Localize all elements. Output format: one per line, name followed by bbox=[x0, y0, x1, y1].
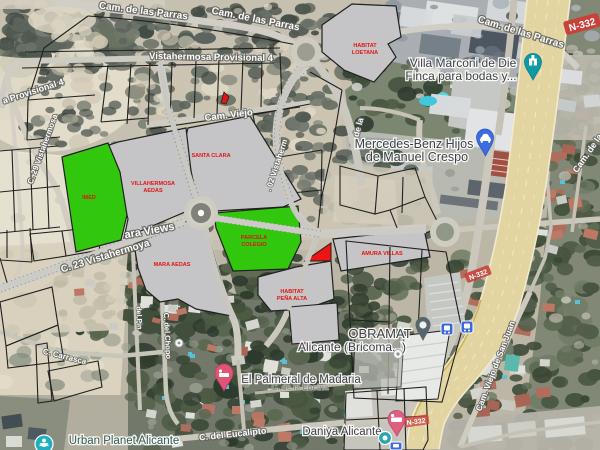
svg-text:Villa Marconi de Die: Villa Marconi de Die bbox=[410, 56, 517, 70]
svg-text:AEDAS: AEDAS bbox=[143, 188, 163, 194]
svg-text:HABITAT: HABITAT bbox=[280, 289, 304, 295]
svg-text:AMURA VILLAS: AMURA VILLAS bbox=[361, 251, 403, 257]
svg-text:Daniya Alicante: Daniya Alicante bbox=[302, 426, 381, 438]
svg-text:IMED: IMED bbox=[82, 195, 96, 201]
svg-text:SANTA CLARA: SANTA CLARA bbox=[191, 153, 230, 159]
svg-text:OBRAMAT: OBRAMAT bbox=[348, 326, 411, 341]
svg-text:Mercedes-Benz Hijos: Mercedes-Benz Hijos bbox=[355, 137, 474, 151]
svg-text:VILLAHERMOSA: VILLAHERMOSA bbox=[131, 181, 175, 187]
svg-text:de Manuel Crespo: de Manuel Crespo bbox=[366, 150, 468, 164]
svg-text:HABITAT: HABITAT bbox=[353, 43, 377, 49]
svg-text:PEÑA ALTA: PEÑA ALTA bbox=[277, 295, 307, 302]
svg-text:Urban Planet Alicante: Urban Planet Alicante bbox=[69, 435, 180, 447]
svg-text:LOETANA: LOETANA bbox=[352, 50, 378, 56]
svg-text:MARA AEDAS: MARA AEDAS bbox=[154, 262, 191, 268]
svg-text:PARCELA: PARCELA bbox=[241, 235, 267, 241]
svg-text:Vistahermosa Provisional 4: Vistahermosa Provisional 4 bbox=[149, 51, 274, 64]
svg-text:COLEGIO: COLEGIO bbox=[241, 242, 267, 248]
svg-text:Finca para bodas y...: Finca para bodas y... bbox=[405, 69, 516, 83]
svg-text:del Pin: del Pin bbox=[134, 306, 142, 329]
svg-text:C. de la Encina: C. de la Encina bbox=[272, 383, 329, 392]
svg-text:Alicante (Bricoma...): Alicante (Bricoma...) bbox=[298, 340, 406, 354]
